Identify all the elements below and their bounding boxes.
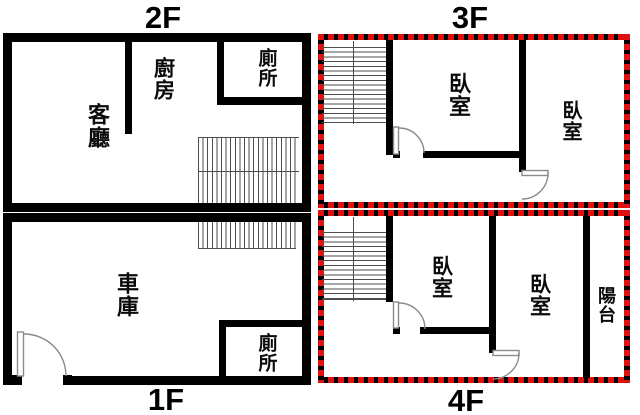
room-label-bedroom2-3f: 臥室 [560, 100, 580, 142]
wall-4f-balcony-divider [583, 216, 590, 378]
room-label-toilet-2f: 廁所 [257, 48, 276, 88]
stairs-4f-mid-line [353, 217, 354, 301]
wall-4f-bedroom1-bottom [420, 327, 496, 334]
stairs-1f-bottom-line [198, 248, 296, 249]
floor-label-3f: 3F [452, 2, 488, 33]
wall-4f-door-cap [393, 327, 400, 334]
room-label-bedroom1-4f: 臥室 [431, 255, 452, 299]
stairs-3f-mid-line [353, 41, 354, 124]
door-4f-bedroom2 [493, 351, 519, 380]
wall-1f-door-cap-left [12, 375, 22, 385]
floor-label-1f: 1F [148, 384, 184, 415]
stairs-3f [322, 47, 386, 124]
wall-3f-bedroom-divider [519, 40, 526, 172]
door-3f-bedroom1 [394, 127, 425, 154]
highlight-border-3f-bottom [318, 202, 630, 208]
room-label-living: 客廳 [86, 103, 108, 149]
door-4f-bedroom1 [394, 302, 426, 329]
door-3f-bedroom2 [522, 171, 548, 200]
room-label-bedroom2-4f: 臥室 [529, 273, 550, 317]
highlight-border-3f-right [624, 34, 630, 208]
wall-2f-toilet-bottom [217, 97, 303, 105]
stairs-4f-bottom-line [322, 299, 386, 300]
room-label-kitchen: 廚房 [153, 57, 174, 101]
floor-label-2f: 2F [145, 2, 181, 33]
wall-1f-door-cap-right [63, 375, 72, 385]
room-label-balcony: 陽台 [597, 286, 615, 324]
stairs-1f [198, 222, 296, 249]
highlight-border-3f-top [318, 34, 630, 40]
highlight-border-4f-right [624, 210, 630, 383]
stairs-2f-top-line [198, 137, 299, 138]
room-label-toilet-1f: 廁所 [257, 333, 276, 373]
stairs-2f-mid-line [198, 171, 299, 172]
wall-2f-kitchen-partition [125, 41, 132, 134]
stairs-4f [322, 232, 386, 300]
room-label-garage: 車庫 [115, 272, 137, 318]
floor-plan-canvas: 2F 3F 1F 4F 客廳 廚房 廁所 車庫 廁所 臥室 臥室 臥室 臥室 陽… [0, 0, 640, 415]
wall-4f-bedroom-divider [489, 216, 496, 353]
wall-1f-toilet-left [219, 320, 226, 377]
door-opening-1f [21, 375, 65, 385]
wall-1f-toilet-top [219, 320, 303, 327]
stairs-2f [198, 137, 299, 203]
wall-2f-toilet-left [217, 41, 224, 105]
room-label-bedroom1-3f: 臥室 [447, 72, 469, 118]
floor-label-4f: 4F [448, 385, 484, 415]
wall-3f-stair-right [386, 40, 393, 155]
wall-3f-bedroom1-bottom [423, 151, 522, 158]
wall-3f-door-cap [393, 151, 400, 158]
wall-4f-stair-right [386, 216, 393, 302]
